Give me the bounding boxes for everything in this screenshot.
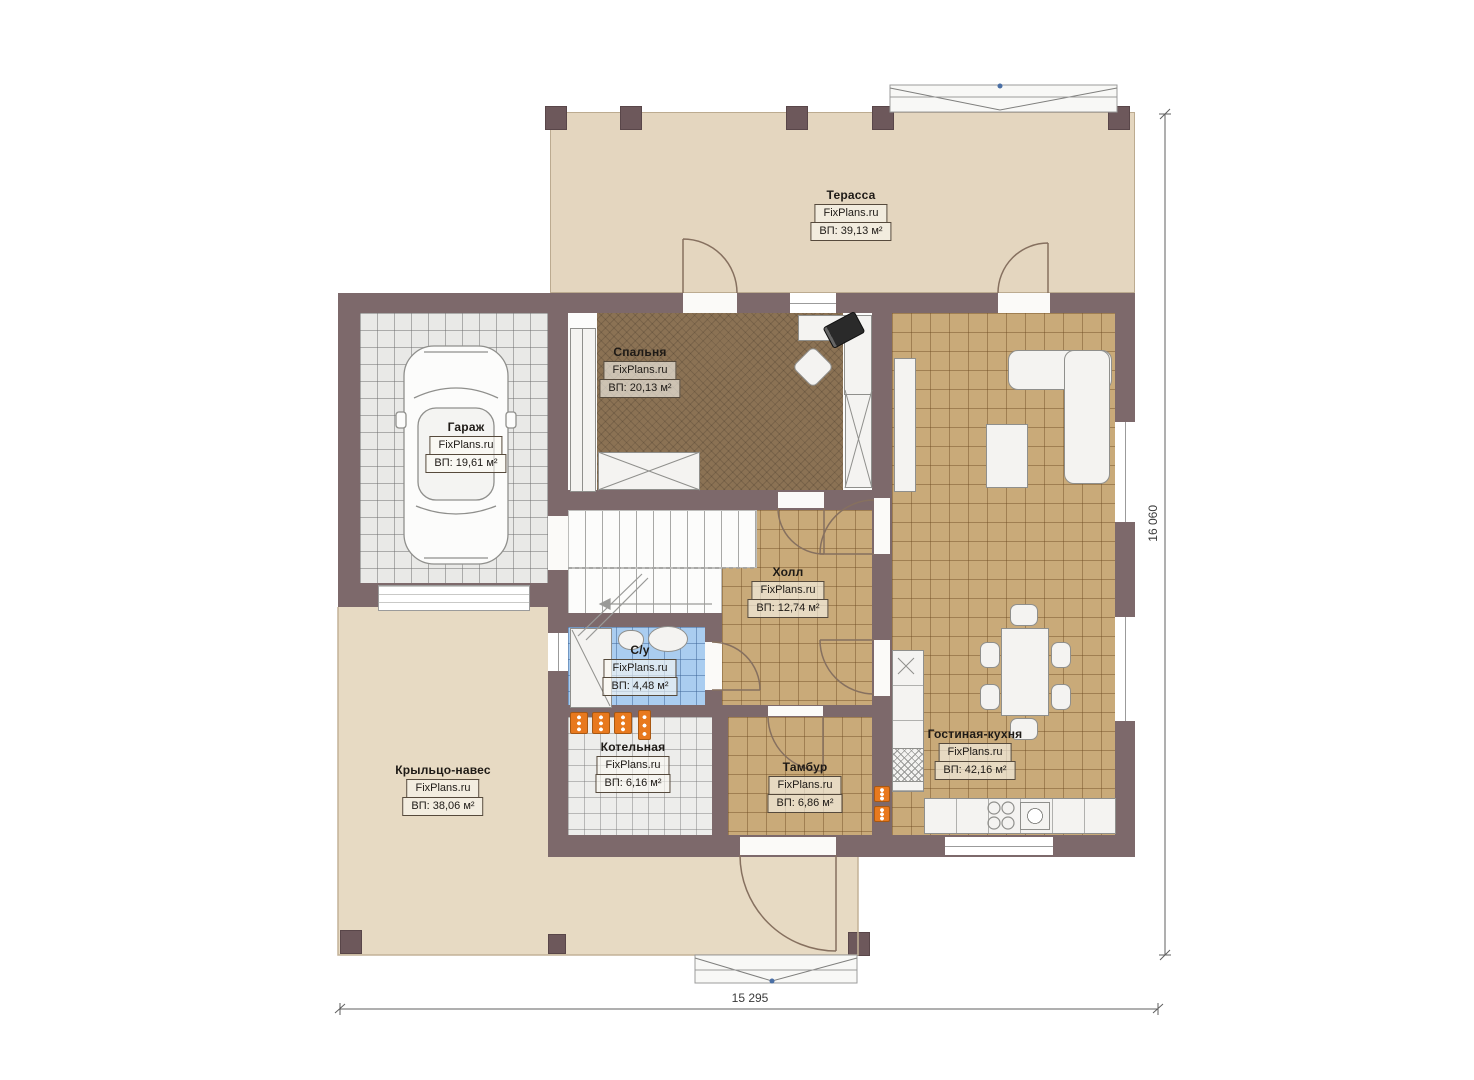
room-label-bathroom: С/у FixPlans.ru ВП: 4,48 м² [602, 643, 677, 696]
room-name: Спальня [613, 345, 666, 359]
floor-plan: Терасса FixPlans.ru ВП: 39,13 м² Спальня… [0, 0, 1474, 1080]
room-area: ВП: 12,74 м² [747, 599, 828, 618]
watermark: FixPlans.ru [596, 756, 669, 774]
watermark: FixPlans.ru [603, 659, 676, 677]
room-area: ВП: 20,13 м² [599, 379, 680, 398]
room-area: ВП: 4,48 м² [602, 677, 677, 696]
stairs-lines [568, 568, 757, 640]
room-name: Терасса [827, 188, 876, 202]
room-name: Холл [773, 565, 804, 579]
porch-steps [695, 955, 857, 984]
watermark: FixPlans.ru [406, 779, 479, 797]
watermark: FixPlans.ru [938, 743, 1011, 761]
room-label-hall: Холл FixPlans.ru ВП: 12,74 м² [747, 565, 828, 618]
room-label-living-kitchen: Гостиная-кухня FixPlans.ru ВП: 42,16 м² [928, 727, 1023, 780]
watermark: FixPlans.ru [603, 361, 676, 379]
room-name: Тамбур [783, 760, 828, 774]
stove-burners [988, 802, 1014, 829]
plan-linework [0, 0, 1474, 1080]
terrace-steps [890, 84, 1117, 113]
room-label-boiler: Котельная FixPlans.ru ВП: 6,16 м² [595, 740, 670, 793]
room-area: ВП: 6,86 м² [767, 794, 842, 813]
room-label-vestibule: Тамбур FixPlans.ru ВП: 6,86 м² [767, 760, 842, 813]
room-area: ВП: 42,16 м² [934, 761, 1015, 780]
room-area: ВП: 39,13 м² [810, 222, 891, 241]
room-name: Гараж [448, 420, 485, 434]
watermark: FixPlans.ru [814, 204, 887, 222]
room-name: Гостиная-кухня [928, 727, 1023, 741]
room-area: ВП: 6,16 м² [595, 774, 670, 793]
room-name: Крыльцо-навес [395, 763, 491, 777]
watermark: FixPlans.ru [429, 436, 502, 454]
room-area: ВП: 38,06 м² [402, 797, 483, 816]
watermark: FixPlans.ru [768, 776, 841, 794]
room-name: Котельная [601, 740, 666, 754]
dimension-height-label: 16 060 [1146, 505, 1160, 542]
watermark: FixPlans.ru [751, 581, 824, 599]
room-label-bedroom: Спальня FixPlans.ru ВП: 20,13 м² [599, 345, 680, 398]
room-area: ВП: 19,61 м² [425, 454, 506, 473]
door-arcs [683, 239, 1048, 951]
room-label-terrace: Терасса FixPlans.ru ВП: 39,13 м² [810, 188, 891, 241]
dimension-width-label: 15 295 [705, 991, 795, 1005]
room-name: С/у [630, 643, 649, 657]
room-label-garage: Гараж FixPlans.ru ВП: 19,61 м² [425, 420, 506, 473]
room-label-porch: Крыльцо-навес FixPlans.ru ВП: 38,06 м² [395, 763, 491, 816]
